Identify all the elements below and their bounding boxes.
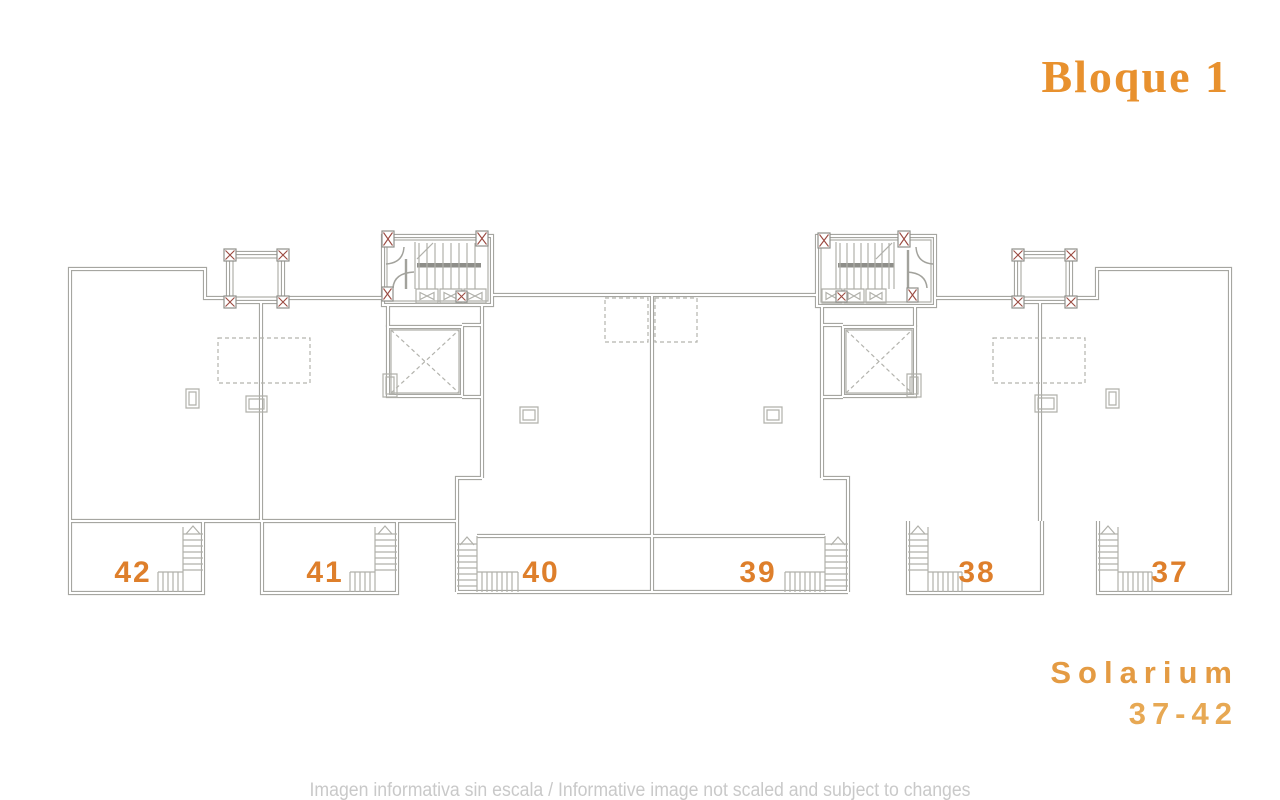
- solarium-label: Solarium: [1050, 655, 1239, 691]
- dashed-pergola-center-left: [605, 298, 648, 342]
- door-arcs: [386, 247, 933, 289]
- floor-plan-page: Bloque 1 42 41 40 39 38 37 Solarium 37-4…: [0, 0, 1280, 800]
- block-title: Bloque 1: [1041, 50, 1230, 103]
- unit-number-37: 37: [1125, 556, 1215, 590]
- unit-number-41: 41: [280, 556, 370, 590]
- disclaimer-text: Imagen informativa sin escala / Informat…: [45, 780, 1235, 800]
- dashed-pergola-center-right: [655, 298, 697, 342]
- outer-boundary-left: [70, 269, 228, 521]
- plan-walls: [70, 236, 1230, 593]
- unit-number-38: 38: [932, 556, 1022, 590]
- unit-number-40: 40: [496, 556, 586, 590]
- unit-number-42: 42: [88, 556, 178, 590]
- unit-number-39: 39: [713, 556, 803, 590]
- thin-details: [158, 240, 1152, 592]
- outer-boundary-right: [1069, 269, 1230, 521]
- dashed-pergola-left: [218, 338, 310, 383]
- solarium-range: 37-42: [1129, 696, 1238, 732]
